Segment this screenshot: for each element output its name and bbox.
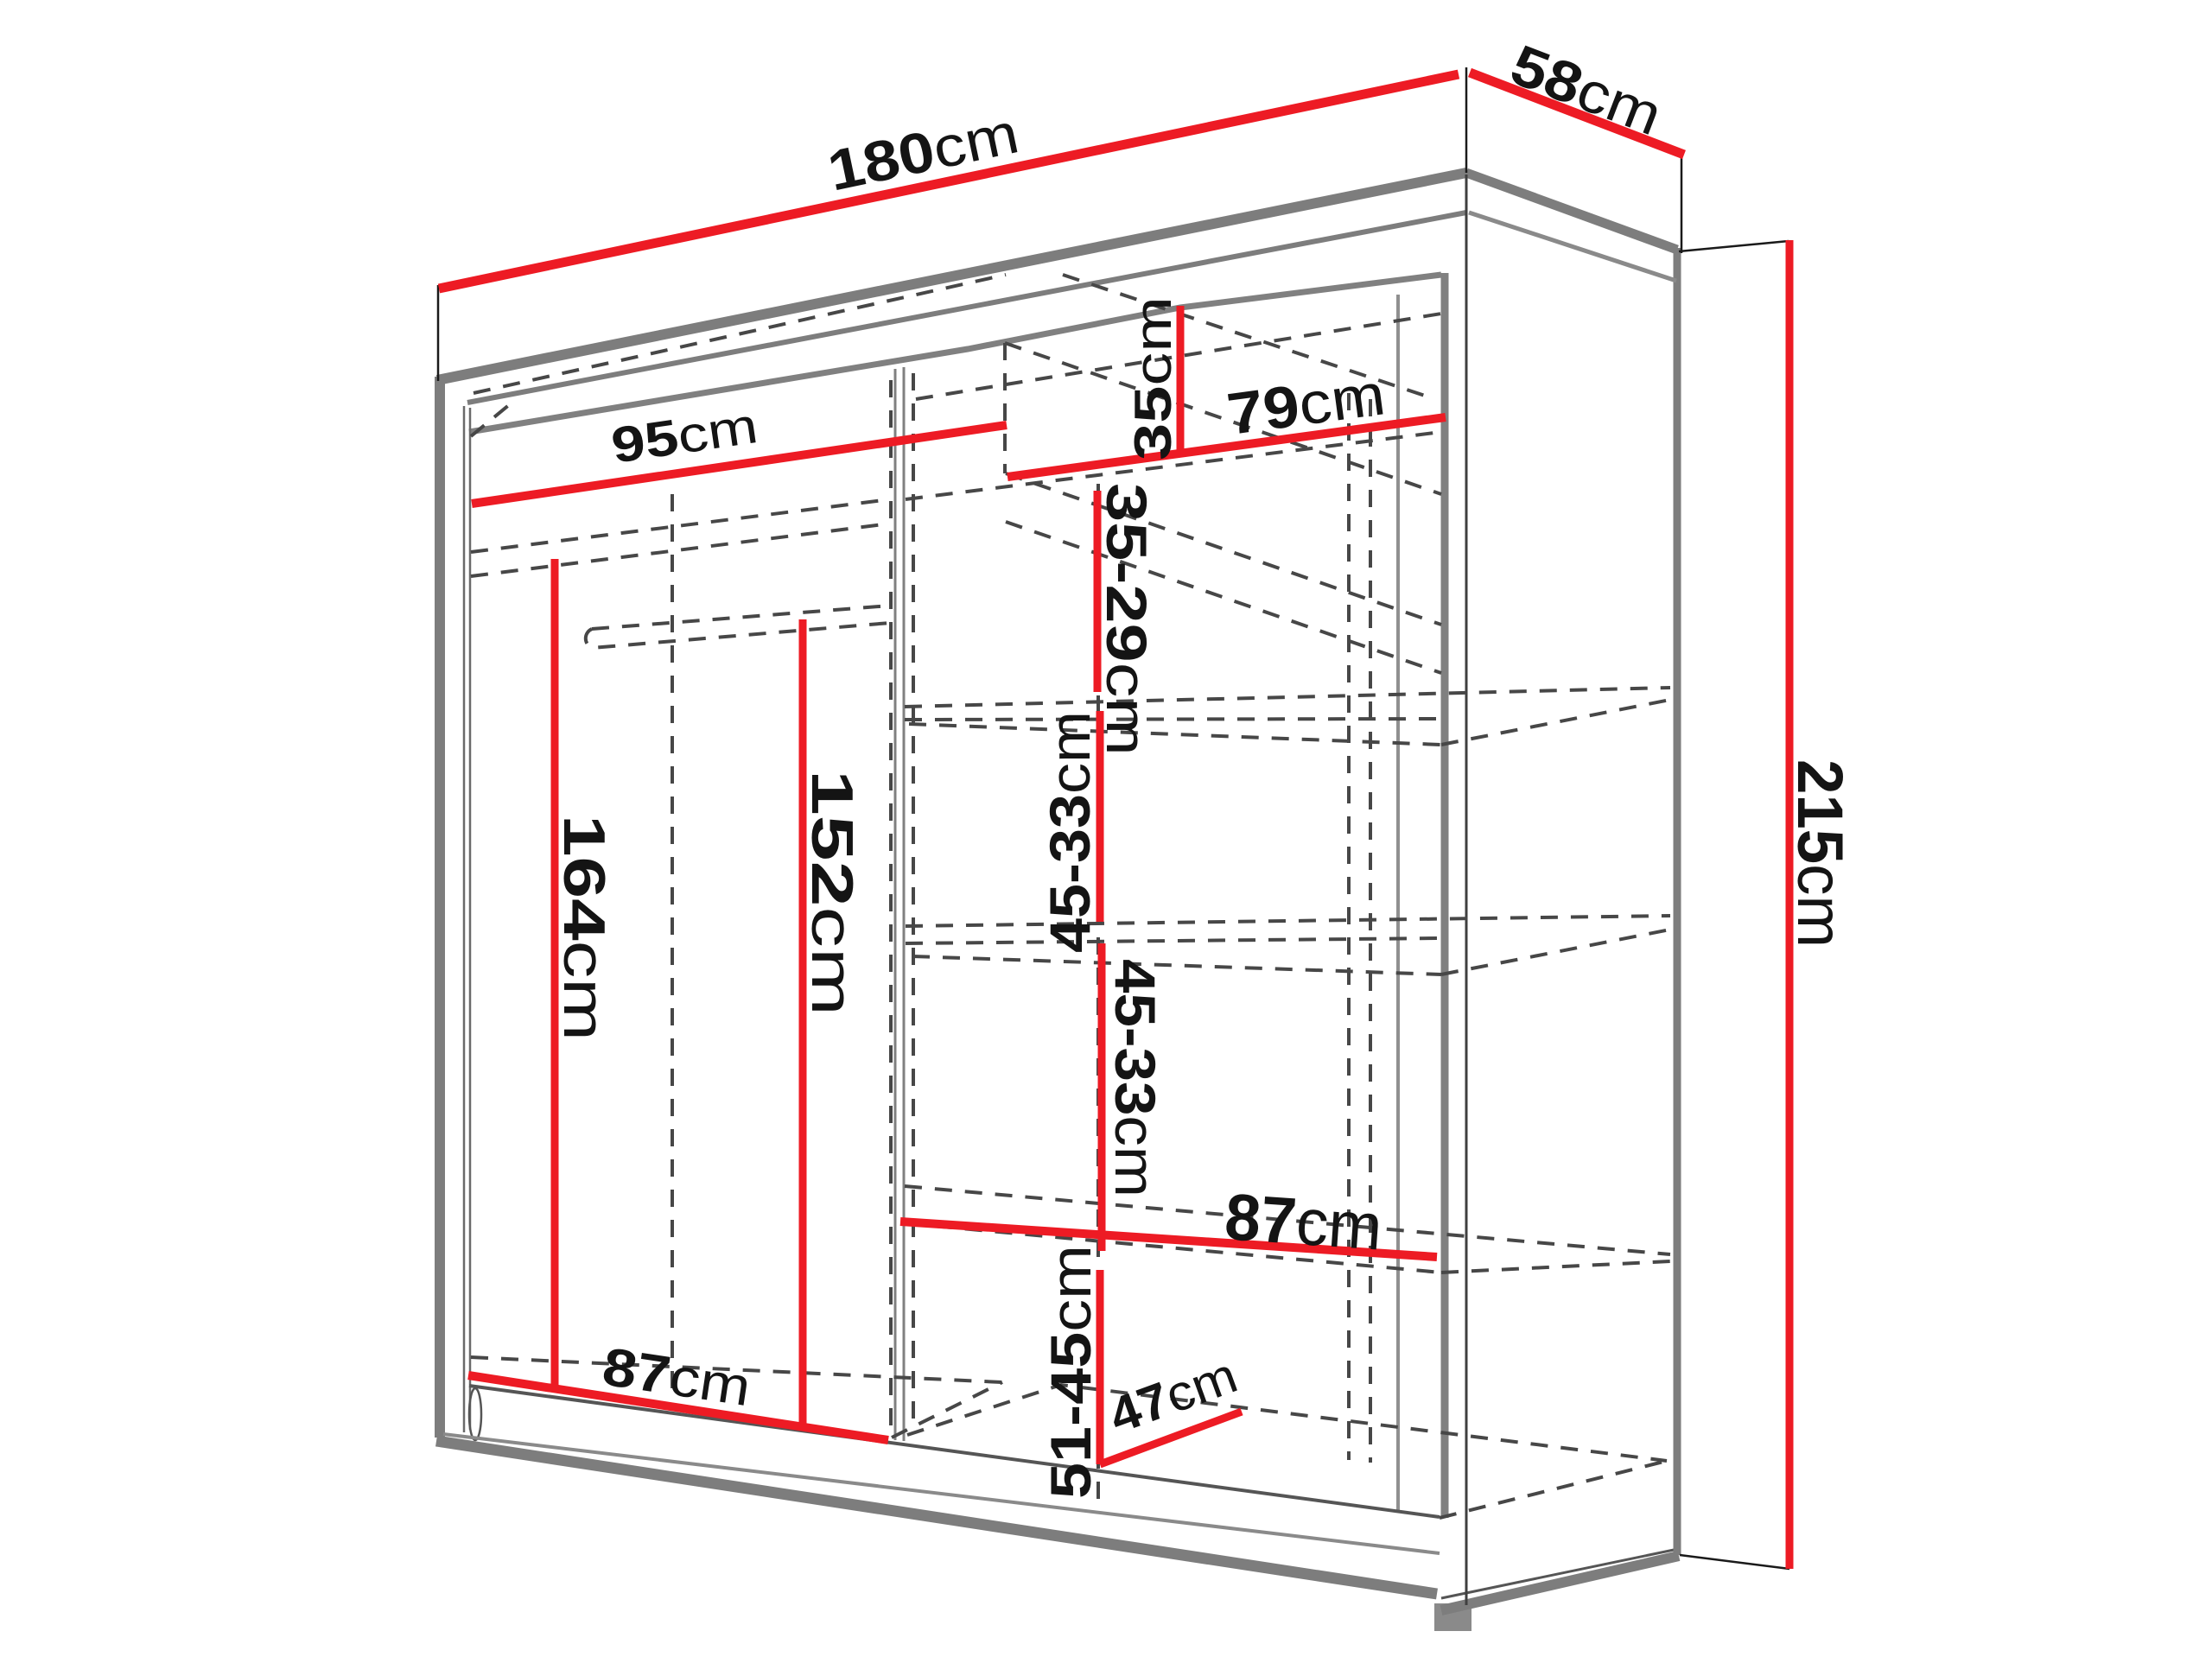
- svg-text:45-33cm: 45-33cm: [1103, 959, 1167, 1197]
- svg-text:35-29cm: 35-29cm: [1095, 483, 1159, 756]
- svg-text:35cm: 35cm: [1124, 296, 1182, 460]
- svg-text:51-45cm: 51-45cm: [1039, 1245, 1103, 1499]
- svg-text:152cm: 152cm: [799, 770, 865, 1016]
- svg-text:215cm: 215cm: [1784, 759, 1856, 948]
- svg-text:164cm: 164cm: [551, 815, 617, 1041]
- svg-text:87cm: 87cm: [1223, 1180, 1384, 1264]
- svg-text:45-33cm: 45-33cm: [1038, 711, 1102, 953]
